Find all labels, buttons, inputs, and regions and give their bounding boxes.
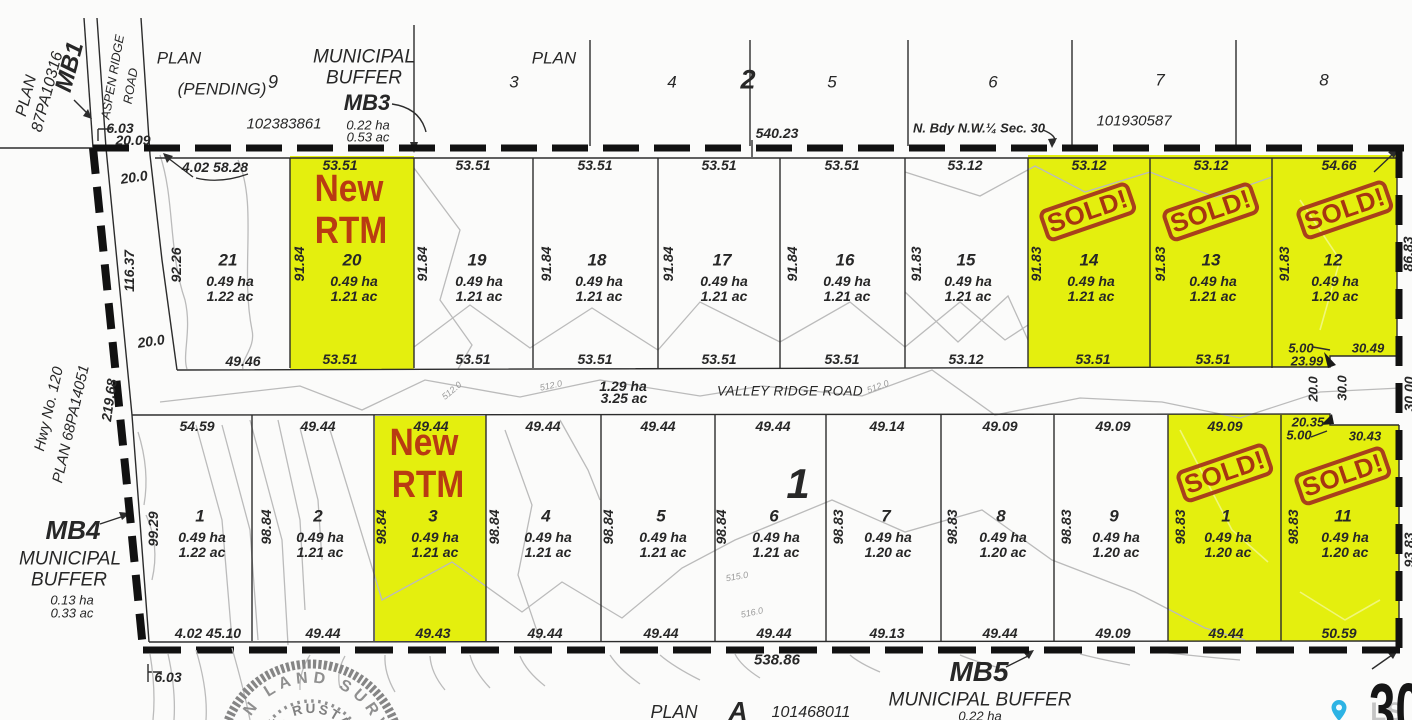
svg-text:.J. RUSTA.: .J. RUSTA. <box>262 701 359 720</box>
